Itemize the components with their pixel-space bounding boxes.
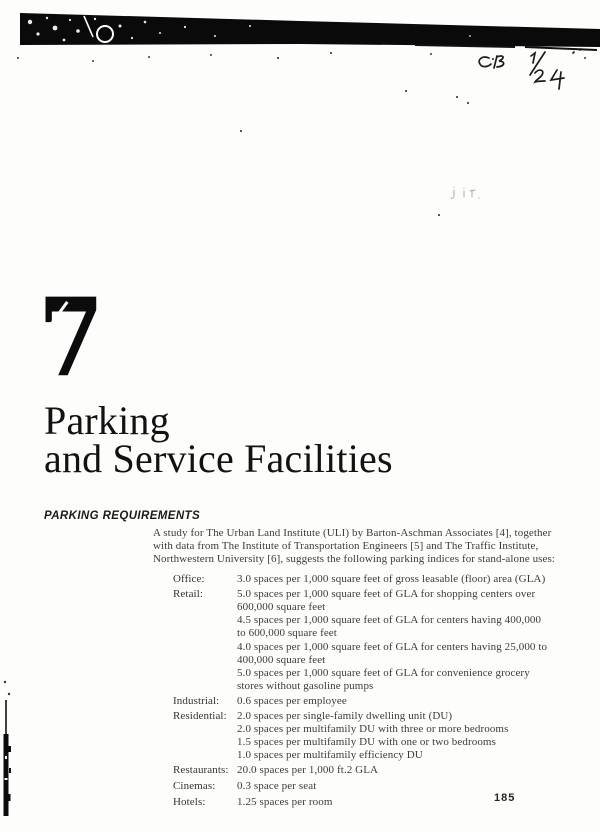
requirement-line: 5.0 spaces per 1,000 square feet of GLA … [237, 588, 593, 601]
scan-noise-dot [438, 214, 440, 216]
requirement-line: 5.0 spaces per 1,000 square feet of GLA … [237, 667, 593, 680]
scan-noise-dot [430, 53, 432, 55]
intro-line: A study for The Urban Land Institute (UL… [153, 527, 593, 540]
requirement-label: Hotels: [173, 796, 237, 809]
requirement-line: 1.0 spaces per multifamily efficiency DU [237, 749, 593, 762]
requirement-line: 2.0 spaces per single-family dwelling un… [237, 710, 593, 723]
chapter-title: Parking and Service Facilities [44, 402, 393, 478]
requirement-line: 1.25 spaces per room [237, 796, 593, 809]
requirement-label: Retail: [173, 588, 237, 694]
intro-line: Northwestern University [6], suggests th… [153, 553, 593, 566]
requirement-line: 0.3 space per seat [237, 780, 593, 793]
scan-noise-dot [277, 57, 279, 59]
requirement-line: 0.6 spaces per employee [237, 695, 593, 708]
requirement-line: 1.5 spaces per multifamily DU with one o… [237, 736, 593, 749]
scan-noise-dot [584, 57, 586, 59]
chapter-title-line-1: Parking [44, 402, 393, 440]
requirement-label: Restaurants: [173, 764, 237, 777]
scan-noise-dot [148, 56, 150, 58]
handwritten-note [472, 48, 590, 94]
requirement-lines: 1.25 spaces per room [237, 796, 593, 809]
scan-noise-dot [467, 102, 469, 104]
scan-noise-marks [444, 182, 486, 206]
requirement-row-residential: Residential: 2.0 spaces per single-famil… [173, 710, 593, 763]
scan-noise-dot [330, 52, 332, 54]
requirement-lines: 0.3 space per seat [237, 780, 593, 793]
requirement-lines: 2.0 spaces per single-family dwelling un… [237, 710, 593, 763]
requirement-row-restaurants: Restaurants: 20.0 spaces per 1,000 ft.2 … [173, 764, 593, 777]
requirements-list: Office: 3.0 spaces per 1,000 square feet… [173, 573, 593, 811]
requirement-line: 400,000 square feet [237, 654, 593, 667]
requirement-line: 20.0 spaces per 1,000 ft.2 GLA [237, 764, 593, 777]
chapter-number: 7 [38, 284, 104, 392]
requirement-row-cinemas: Cinemas: 0.3 space per seat [173, 780, 593, 793]
scanned-document-page: 7 Parking and Service Facilities PARKING… [0, 0, 600, 832]
requirement-row-office: Office: 3.0 spaces per 1,000 square feet… [173, 573, 593, 586]
requirement-label: Cinemas: [173, 780, 237, 793]
requirement-row-hotels: Hotels: 1.25 spaces per room [173, 796, 593, 809]
intro-line: with data from The Institute of Transpor… [153, 540, 593, 553]
scan-noise-dot [92, 60, 94, 62]
requirement-line: 4.0 spaces per 1,000 square feet of GLA … [237, 641, 593, 654]
requirement-row-industrial: Industrial: 0.6 spaces per employee [173, 695, 593, 708]
requirement-line: to 600,000 square feet [237, 627, 593, 640]
requirement-lines: 3.0 spaces per 1,000 square feet of gros… [237, 573, 593, 586]
section-heading: PARKING REQUIREMENTS [44, 510, 200, 522]
requirement-label: Residential: [173, 710, 237, 763]
requirement-lines: 5.0 spaces per 1,000 square feet of GLA … [237, 588, 593, 694]
requirement-line: 600,000 square feet [237, 601, 593, 614]
scan-noise-dot [210, 54, 212, 56]
requirement-lines: 0.6 spaces per employee [237, 695, 593, 708]
requirement-lines: 20.0 spaces per 1,000 ft.2 GLA [237, 764, 593, 777]
intro-paragraph: A study for The Urban Land Institute (UL… [153, 527, 593, 567]
requirement-line: stores without gasoline pumps [237, 680, 593, 693]
chapter-title-line-2: and Service Facilities [44, 440, 393, 478]
scan-noise-dot [405, 90, 407, 92]
requirement-line: 4.5 spaces per 1,000 square feet of GLA … [237, 614, 593, 627]
scan-noise-dot [492, 58, 494, 60]
page-number: 185 [494, 792, 515, 804]
scan-noise-dot [456, 96, 458, 98]
requirement-label: Industrial: [173, 695, 237, 708]
requirement-line: 2.0 spaces per multifamily DU with three… [237, 723, 593, 736]
scan-noise-dot [240, 130, 242, 132]
requirement-label: Office: [173, 573, 237, 586]
scan-artifact-left-streak [0, 676, 16, 816]
requirement-row-retail: Retail: 5.0 spaces per 1,000 square feet… [173, 588, 593, 694]
scan-noise-dot [17, 57, 19, 59]
requirement-line: 3.0 spaces per 1,000 square feet of gros… [237, 573, 593, 586]
